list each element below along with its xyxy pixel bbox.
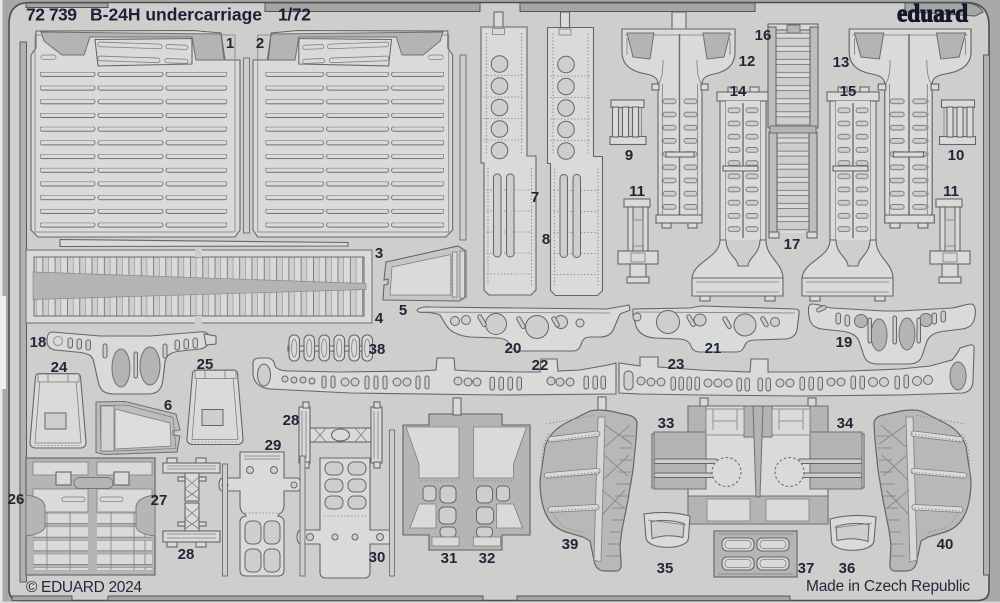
svg-text:33: 33 bbox=[658, 415, 675, 432]
svg-text:17: 17 bbox=[784, 236, 801, 253]
svg-text:26: 26 bbox=[8, 491, 25, 508]
svg-text:20: 20 bbox=[505, 340, 522, 357]
svg-text:14: 14 bbox=[730, 83, 747, 100]
svg-text:9: 9 bbox=[625, 147, 633, 164]
svg-text:21: 21 bbox=[705, 340, 722, 357]
svg-text:5: 5 bbox=[399, 302, 407, 319]
svg-text:39: 39 bbox=[562, 536, 579, 553]
svg-text:35: 35 bbox=[657, 560, 674, 577]
svg-text:Made in Czech Republic: Made in Czech Republic bbox=[806, 578, 970, 595]
svg-text:4: 4 bbox=[375, 310, 384, 327]
svg-text:12: 12 bbox=[739, 53, 756, 70]
svg-text:3: 3 bbox=[375, 245, 383, 262]
svg-text:38: 38 bbox=[369, 341, 386, 358]
svg-text:15: 15 bbox=[840, 83, 857, 100]
svg-text:24: 24 bbox=[51, 359, 68, 376]
svg-text:27: 27 bbox=[151, 492, 168, 509]
svg-text:22: 22 bbox=[532, 357, 549, 374]
svg-text:19: 19 bbox=[836, 334, 853, 351]
svg-text:eduard: eduard bbox=[897, 1, 968, 28]
svg-text:6: 6 bbox=[164, 397, 172, 414]
svg-text:32: 32 bbox=[479, 550, 496, 567]
svg-text:37: 37 bbox=[798, 560, 815, 577]
svg-text:16: 16 bbox=[755, 27, 772, 44]
svg-text:30: 30 bbox=[369, 549, 386, 566]
svg-text:13: 13 bbox=[833, 54, 850, 71]
svg-text:2: 2 bbox=[256, 35, 264, 52]
svg-text:10: 10 bbox=[948, 147, 965, 164]
svg-text:28: 28 bbox=[178, 546, 195, 563]
svg-text:11: 11 bbox=[943, 183, 959, 200]
svg-text:1: 1 bbox=[226, 35, 234, 52]
svg-text:8: 8 bbox=[542, 231, 550, 248]
svg-text:23: 23 bbox=[668, 356, 685, 373]
svg-text:B-24H undercarriage: B-24H undercarriage bbox=[90, 5, 262, 25]
svg-text:72 739: 72 739 bbox=[26, 5, 77, 25]
svg-text:18: 18 bbox=[30, 334, 47, 351]
svg-text:36: 36 bbox=[839, 560, 856, 577]
svg-text:29: 29 bbox=[265, 437, 282, 454]
svg-text:7: 7 bbox=[531, 189, 539, 206]
svg-text:40: 40 bbox=[937, 536, 954, 553]
svg-text:28: 28 bbox=[283, 412, 300, 429]
svg-text:25: 25 bbox=[197, 356, 214, 373]
svg-text:1/72: 1/72 bbox=[278, 5, 311, 25]
svg-text:31: 31 bbox=[441, 550, 458, 567]
svg-text:© EDUARD 2024: © EDUARD 2024 bbox=[26, 579, 142, 596]
svg-text:34: 34 bbox=[837, 415, 854, 432]
svg-text:11: 11 bbox=[629, 183, 645, 200]
